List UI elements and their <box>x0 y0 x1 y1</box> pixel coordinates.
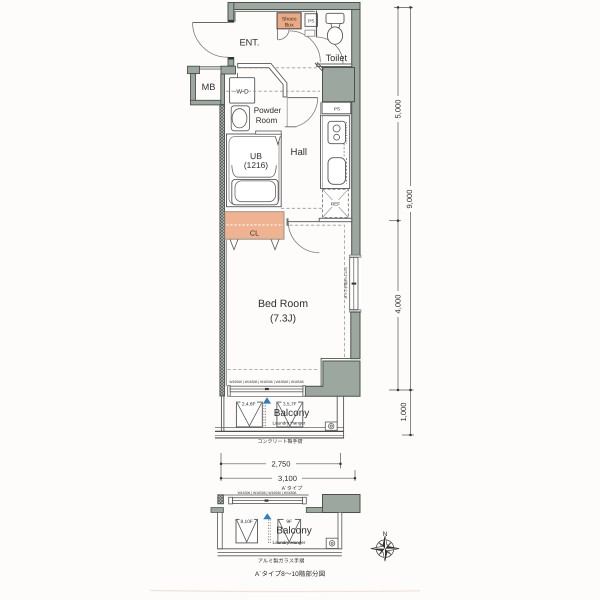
svg-text:W16506 | W16506 | W16506 | W16: W16506 | W16506 | W16506 | W16506 <box>238 491 297 495</box>
svg-text:9,000: 9,000 <box>405 189 414 208</box>
svg-text:REF: REF <box>331 202 340 207</box>
svg-text:Balcony: Balcony <box>276 526 312 537</box>
svg-text:アルミ製ガラス手摺: アルミ製ガラス手摺 <box>258 558 305 565</box>
svg-text:Laundry Hanger: Laundry Hanger <box>273 540 306 545</box>
svg-text:Shoes: Shoes <box>282 16 297 22</box>
svg-text:Room: Room <box>256 116 278 125</box>
svg-text:Hall: Hall <box>291 147 308 158</box>
svg-text:Balcony: Balcony <box>274 408 310 419</box>
svg-text:CL: CL <box>250 228 259 237</box>
svg-text:A´タイプ8〜10階部分図: A´タイプ8〜10階部分図 <box>255 570 326 578</box>
svg-text:9F: 9F <box>286 519 292 525</box>
svg-text:2,4,6F: 2,4,6F <box>242 402 256 408</box>
svg-text:MB: MB <box>202 82 216 92</box>
svg-text:8,10F: 8,10F <box>241 519 253 525</box>
svg-text:Bed Room: Bed Room <box>258 298 308 310</box>
svg-text:W16506 | W16506 | W16506 | W16: W16506 | W16506 | W16506 | W16506 | W165… <box>229 380 303 384</box>
svg-text:2,750: 2,750 <box>271 460 290 469</box>
svg-text:5,000: 5,000 <box>393 99 402 118</box>
svg-text:PS: PS <box>334 106 340 111</box>
svg-text:Laundry Hanger: Laundry Hanger <box>273 420 306 425</box>
svg-text:(1216): (1216) <box>244 160 268 170</box>
svg-text:Toilet: Toilet <box>326 53 348 63</box>
svg-text:3,100: 3,100 <box>278 474 297 483</box>
svg-text:PS: PS <box>308 19 314 24</box>
svg-text:コンクリート製手摺: コンクリート製手摺 <box>257 438 302 445</box>
svg-text:(7.3J): (7.3J) <box>270 314 296 325</box>
svg-text:4,000: 4,000 <box>393 294 402 313</box>
svg-text:-W-D: -W-D <box>234 88 249 95</box>
svg-text:ガラス手摺(H=1,100): ガラス手摺(H=1,100) <box>344 267 348 299</box>
svg-text:1,000: 1,000 <box>399 402 408 421</box>
svg-text:Box: Box <box>285 23 294 29</box>
svg-text:N: N <box>383 531 388 538</box>
svg-text:Powder: Powder <box>254 106 282 115</box>
svg-text:3,5,7F: 3,5,7F <box>283 402 297 408</box>
svg-text:ENT.: ENT. <box>240 38 260 48</box>
